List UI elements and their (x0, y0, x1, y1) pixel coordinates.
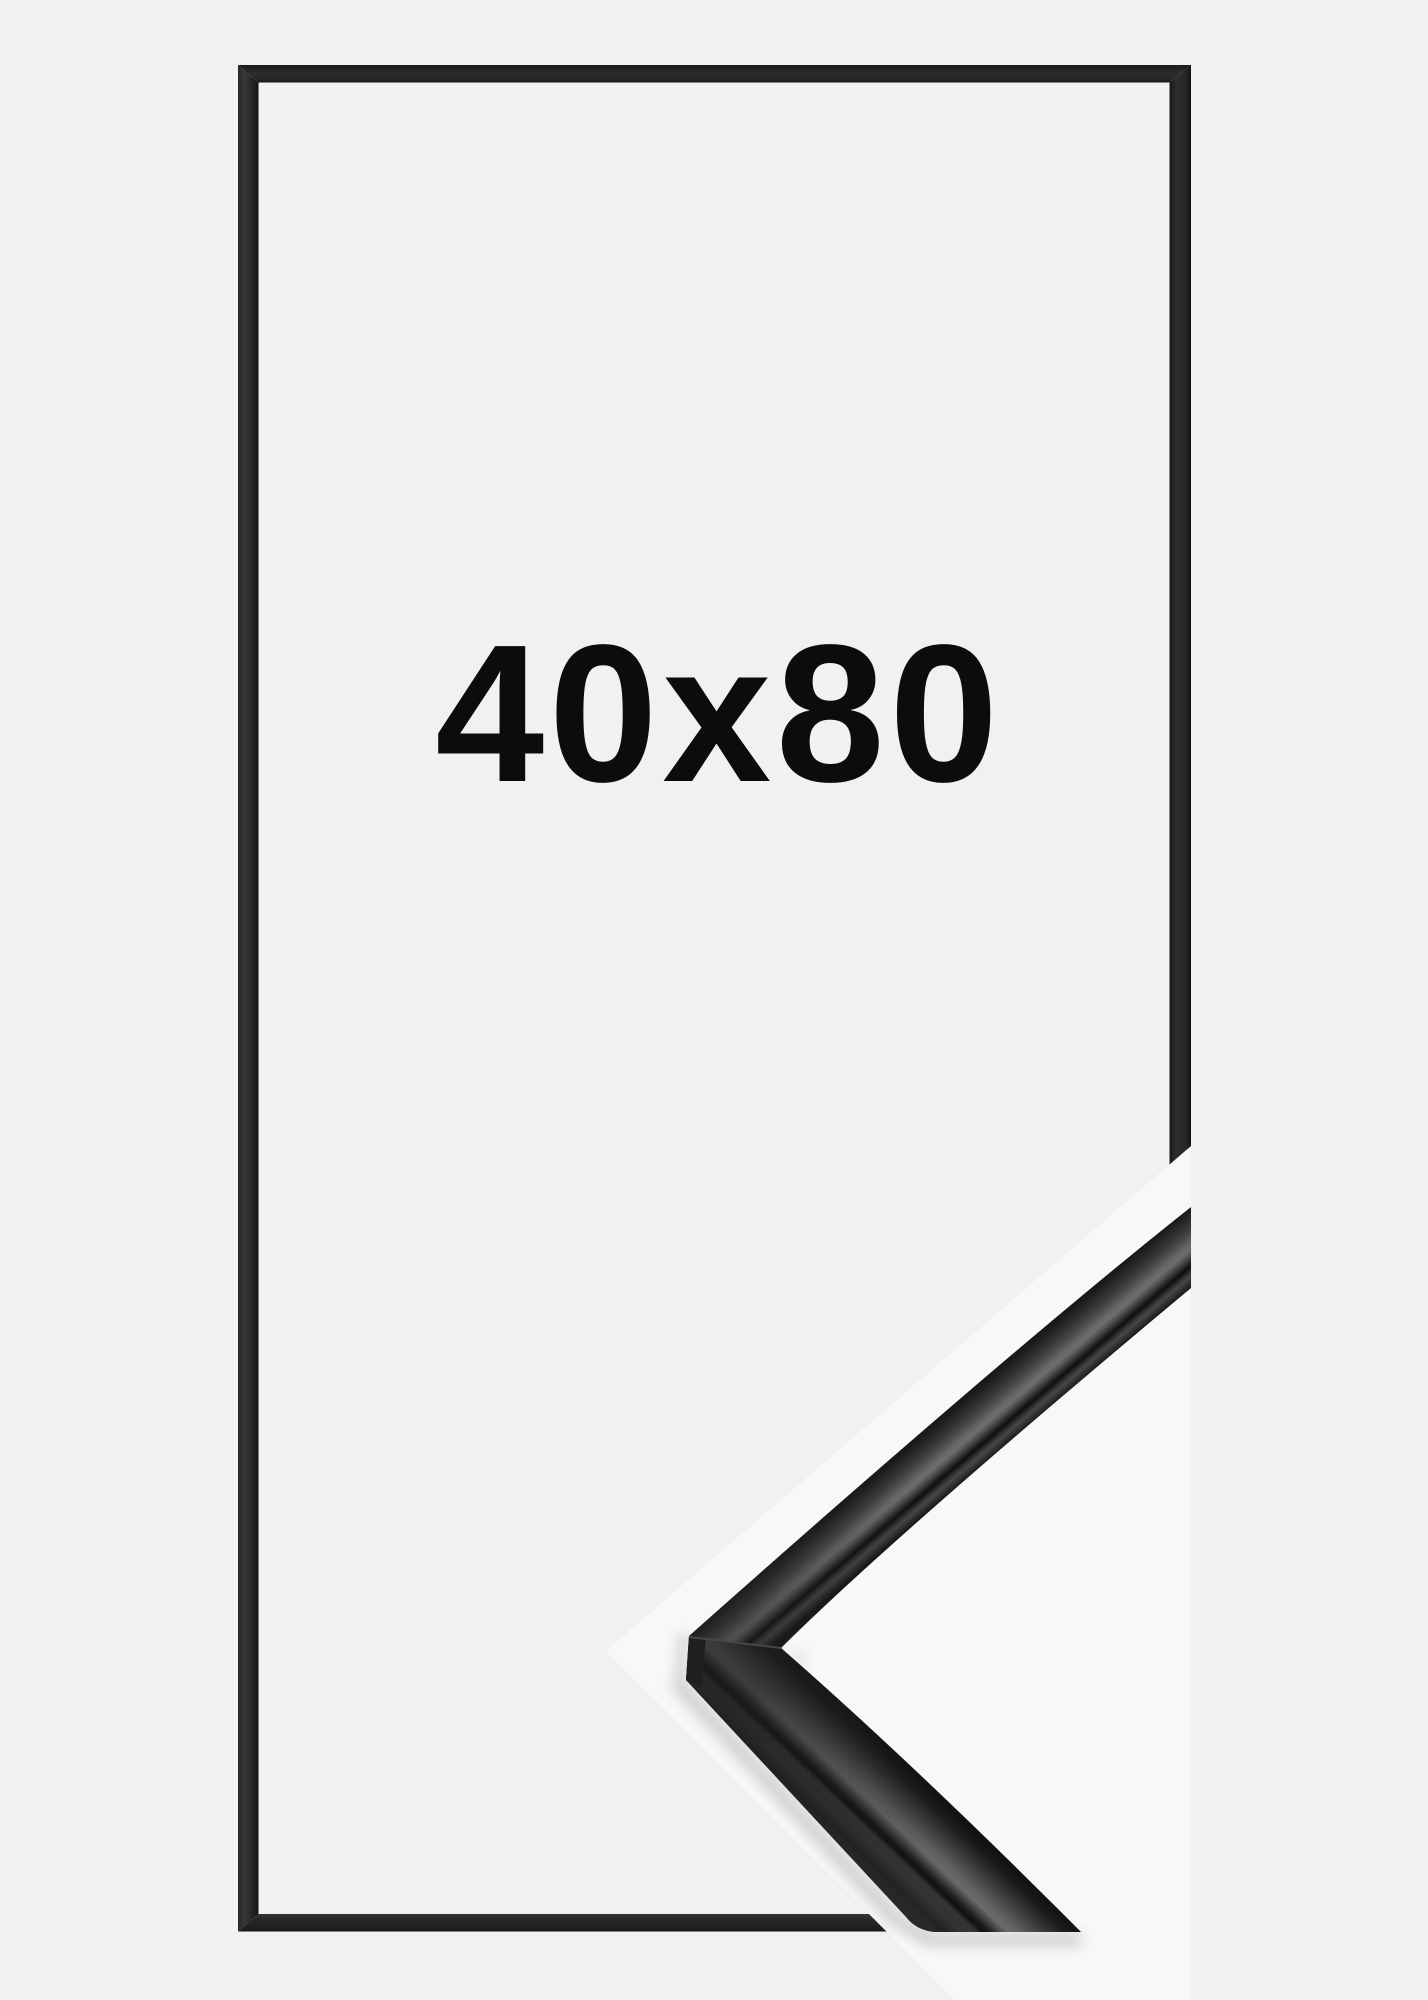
svg-text:40x80: 40x80 (435, 604, 1003, 823)
